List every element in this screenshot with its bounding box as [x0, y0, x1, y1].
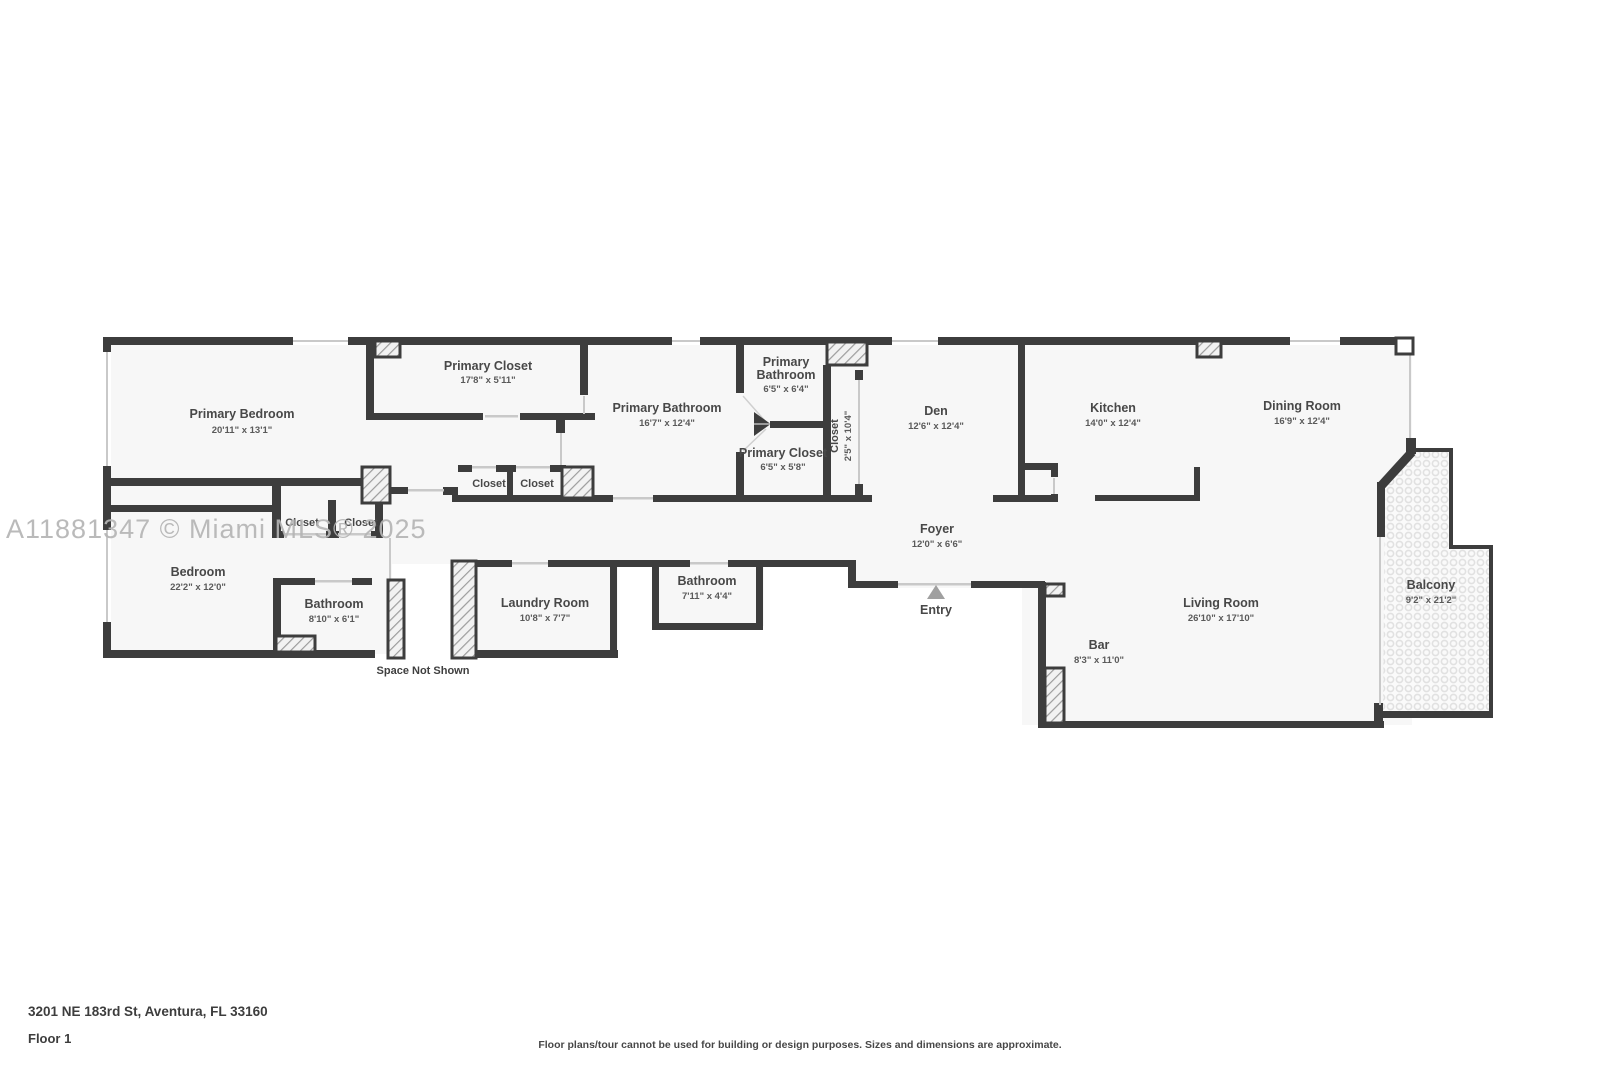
balcony-label: Balcony	[1407, 578, 1456, 592]
primary-bathroom-small-line1: Primary	[763, 355, 810, 369]
mls-watermark: A11881347 © Miami MLS® 2025	[6, 514, 427, 545]
kitchen-label: Kitchen	[1090, 401, 1136, 415]
living-room-label: Living Room	[1183, 596, 1259, 610]
bedroom-dims: 22'2" x 12'0"	[170, 582, 226, 593]
primary-bathroom-label: Primary Bathroom	[612, 401, 721, 415]
entry-door-fixture	[1396, 338, 1413, 354]
dining-room-dims: 16'9" x 12'4"	[1274, 416, 1330, 427]
bathroom-mid-dims: 7'11" x 4'4"	[682, 591, 732, 602]
den-dims: 12'6" x 12'4"	[908, 421, 964, 432]
primary-bedroom-label: Primary Bedroom	[190, 407, 295, 421]
floorplan-page: Primary Bedroom 20'11" x 13'1" Primary C…	[0, 0, 1600, 1066]
balcony-dims: 9'2" x 21'2"	[1406, 595, 1457, 606]
laundry-room-label: Laundry Room	[501, 596, 589, 610]
dining-room-label: Dining Room	[1263, 399, 1341, 413]
laundry-room-dims: 10'8" x 7'7"	[520, 613, 571, 624]
primary-bathroom-small-dims: 6'5" x 6'4"	[763, 384, 808, 395]
primary-bathroom-dims: 16'7" x 12'4"	[639, 418, 695, 429]
primary-closet-label: Primary Closet	[444, 359, 533, 373]
foyer-dims: 12'0" x 6'6"	[912, 539, 963, 550]
primary-bedroom-dims: 20'11" x 13'1"	[212, 425, 273, 436]
space-not-shown-label: Space Not Shown	[377, 665, 470, 677]
property-address: 3201 NE 183rd St, Aventura, FL 33160	[28, 1004, 268, 1019]
disclaimer-text: Floor plans/tour cannot be used for buil…	[0, 1039, 1600, 1051]
bar-dims: 8'3" x 11'0"	[1074, 655, 1124, 666]
living-room-dims: 26'10" x 17'10"	[1188, 613, 1254, 624]
closet-hall-2-label: Closet	[520, 478, 554, 490]
bathroom-mid-label: Bathroom	[677, 574, 736, 588]
closet-tall-dims: 2'5" x 10'4"	[843, 411, 854, 462]
primary-closet-small-dims: 6'5" x 5'8"	[760, 462, 805, 473]
foyer-label: Foyer	[920, 522, 954, 536]
kitchen-dims: 14'0" x 12'4"	[1085, 418, 1141, 429]
closet-tall-label: Closet	[829, 419, 841, 453]
primary-bathroom-small-line2: Bathroom	[756, 368, 815, 382]
bedroom-label: Bedroom	[171, 565, 226, 579]
bathroom-left-label: Bathroom	[304, 597, 363, 611]
entry-label: Entry	[920, 603, 952, 617]
primary-closet-dims: 17'8" x 5'11"	[460, 375, 515, 386]
closet-hall-1-label: Closet	[472, 478, 506, 490]
den-label: Den	[924, 404, 948, 418]
primary-closet-small-label: Primary Closet	[739, 446, 828, 460]
bathroom-left-dims: 8'10" x 6'1"	[309, 614, 360, 625]
bar-label: Bar	[1089, 638, 1110, 652]
